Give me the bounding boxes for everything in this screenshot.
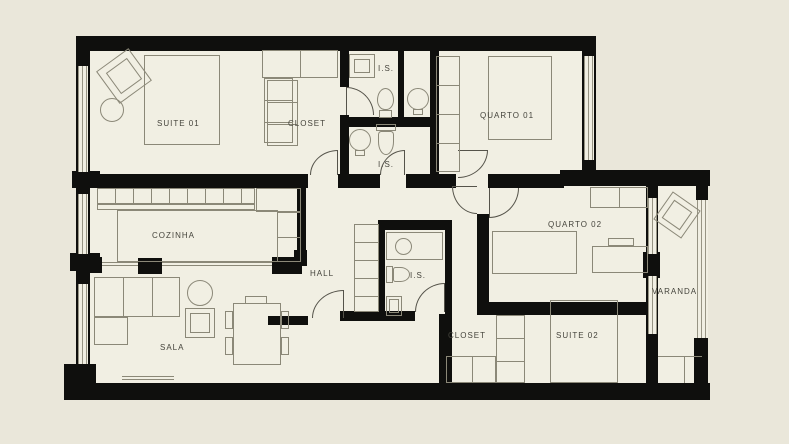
label-varanda: VARANDA [652,287,697,296]
sofa-chaise [94,317,128,345]
window-sala [78,284,88,364]
window-suite02-varanda [648,276,657,334]
counter-pass-through-1 [102,262,138,266]
bed-suite01 [144,55,220,145]
bed-quarto02 [492,231,577,274]
hall-shelf [354,224,379,312]
label-is-top: I.S. [378,64,394,73]
wall-extension-top [560,170,710,186]
label-hall: HALL [310,269,334,278]
coffee-table-sala [187,280,213,306]
toilet-is2-tank [376,124,396,131]
kitchen-tall-unit [277,212,301,262]
wall-top [86,36,596,51]
wall-varanda-right-lower-block [694,338,708,388]
window-quarto01 [584,56,594,160]
sala-threshold [122,376,174,380]
wall-varanda-right-upper-block [696,182,708,200]
sink-is1-pedestal [413,109,423,115]
kitchen-fridge [256,188,301,212]
dining-chair-right-2 [281,337,289,355]
kitchen-counter-cabinets [97,188,255,204]
wardrobe-quarto01 [436,56,460,172]
label-closet-top: CLOSET [288,119,326,128]
toilet-is1 [377,88,394,110]
armchair-sala [185,308,215,338]
toilet-is1-base [379,110,392,118]
window-suite01 [78,66,88,172]
side-table-suite01 [100,98,124,122]
dining-chair-left-1 [225,311,233,329]
wall-ismid-right [445,230,452,318]
label-suite02: SUITE 02 [556,331,599,340]
wall-bottom-left-corner [64,364,96,386]
kitchen-island [117,210,278,262]
wall-is1-inner [398,51,404,119]
floor-plan-canvas: SUITE 01 CLOSET I.S. I.S. QUARTO 01 COZI… [0,0,789,444]
wall-ismid-left [378,230,385,318]
wall-bottom [64,383,710,400]
counter-pass-through-2 [162,262,272,266]
dining-table [233,303,281,365]
label-quarto02: QUARTO 02 [548,220,602,229]
wall-cozinha-sala-pier-1 [80,257,102,273]
closet-top-column [264,78,293,143]
label-closet-bottom: CLOSET [448,331,486,340]
bed-quarto01 [488,56,552,140]
wall-suite01-cozinha [86,174,308,188]
sink-is2 [349,129,371,151]
label-is-upper2: I.S. [378,160,394,169]
window-cozinha [78,194,88,254]
wall-ismid-top [378,220,452,230]
closet2-column [496,315,525,383]
wardrobe-quarto02 [590,187,648,208]
desk-quarto02 [592,246,648,273]
sink-is-hall [395,238,412,255]
sink-is2-pedestal [355,150,365,156]
dining-chair-top [245,296,267,304]
closet2-bottom-shelf [446,356,496,383]
label-cozinha: COZINHA [152,231,195,240]
wall-closet-is-divider-a [340,51,349,87]
wall-hall-bottom-mid [340,311,415,321]
varanda-divider-v [684,356,685,383]
label-quarto01: QUARTO 01 [480,111,534,120]
window-quarto02-varanda [648,198,657,254]
varanda-divider-h [658,356,702,357]
shower-is-hall [386,296,402,316]
label-suite01: SUITE 01 [157,119,200,128]
toilet-is-hall-tank [386,266,393,283]
wall-quarto01-bottom [488,174,564,188]
label-is-hall: I.S. [410,271,426,280]
railing-varanda [697,200,707,338]
closet-top-shelf [262,50,338,78]
label-sala: SALA [160,343,184,352]
sink-is1 [407,88,429,110]
wall-quarto02-left [477,214,489,306]
shower-is1 [349,54,375,78]
monitor-quarto02 [608,238,634,246]
dining-chair-right-1 [281,311,289,329]
dining-chair-left-2 [225,337,233,355]
sofa-main [94,277,180,317]
bed-suite02 [550,300,618,383]
